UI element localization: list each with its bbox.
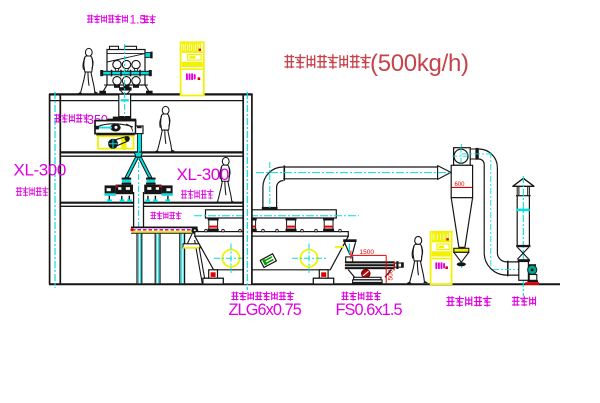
svg-text:1500: 1500 (360, 249, 375, 256)
svg-text:XL-300: XL-300 (177, 165, 229, 184)
svg-text:FS0.6x1.5: FS0.6x1.5 (336, 301, 403, 319)
svg-text:XL-300: XL-300 (14, 161, 66, 180)
svg-text:500: 500 (388, 269, 395, 280)
svg-text:(500kg/h): (500kg/h) (370, 50, 469, 77)
svg-text:ZLG6x0.75: ZLG6x0.75 (229, 301, 302, 319)
